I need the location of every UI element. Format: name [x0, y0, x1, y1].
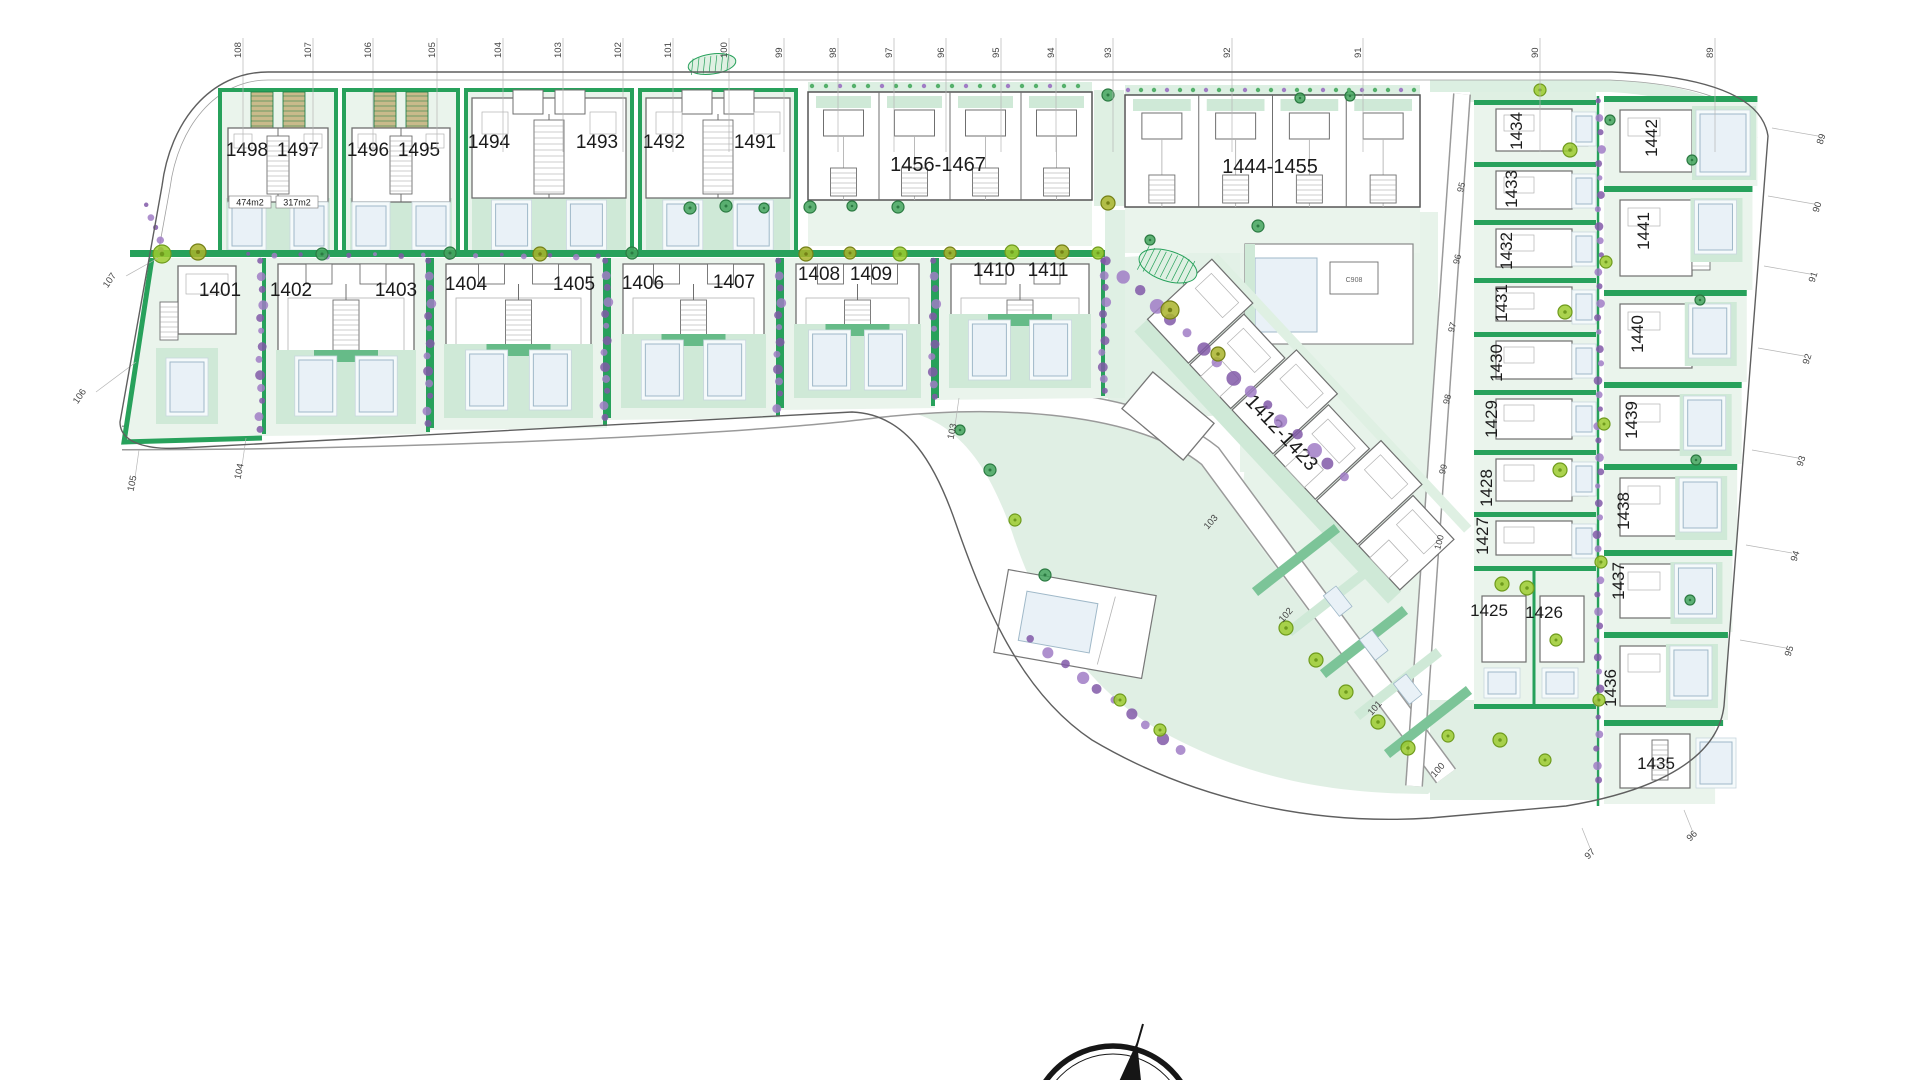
tree-center [1598, 699, 1601, 702]
stair-hatch [1296, 175, 1322, 203]
carport [406, 92, 428, 130]
pool-water [1576, 178, 1592, 204]
hedge-strip [1474, 450, 1596, 455]
tick-left: 106 [71, 387, 89, 406]
pool [1696, 738, 1736, 788]
pool [1696, 110, 1750, 176]
unit-terrace [1363, 113, 1403, 139]
lot-label-1431: 1431 [1492, 284, 1511, 322]
shrub-icon [1597, 145, 1606, 154]
shrub-icon [258, 342, 267, 351]
shrub-icon [930, 272, 939, 281]
tick-top: 98 [828, 47, 839, 58]
hedge-strip [1474, 332, 1596, 337]
tree-center [1097, 252, 1100, 255]
shrub-icon [930, 380, 938, 388]
shrub-icon [1263, 400, 1272, 409]
shrub-icon [272, 253, 278, 259]
tree-center [959, 429, 962, 432]
hedge-strip [1604, 382, 1742, 388]
lot-label-1405: 1405 [553, 274, 595, 295]
shrub-icon [1593, 746, 1599, 752]
pool [864, 330, 906, 390]
shrub-icon [600, 362, 610, 372]
pool-water [1688, 400, 1722, 446]
tick-top: 108 [233, 42, 244, 58]
shrub-icon [775, 377, 783, 385]
shrub-icon [928, 367, 938, 377]
tick-top: 93 [1103, 47, 1114, 58]
shrub-icon [257, 384, 265, 392]
shrub-icon [1595, 545, 1602, 552]
area-tag: 317m2 [283, 198, 311, 208]
stair-hatch [1149, 175, 1175, 203]
pool-water [294, 206, 324, 246]
pool-water [299, 360, 333, 412]
pool-water [170, 362, 204, 412]
shrub-icon [426, 325, 432, 331]
planting-dot [936, 84, 940, 88]
tick-mid-road: 96 [1451, 253, 1463, 265]
pool-water [868, 334, 902, 386]
shrub-icon [426, 299, 436, 309]
survey-line [1746, 545, 1792, 553]
shrub-icon [500, 253, 504, 257]
shrub-icon [1061, 659, 1070, 668]
shrub-icon [1597, 237, 1604, 244]
pool [1679, 478, 1721, 532]
shrub-icon [1595, 483, 1600, 488]
tick-right: 94 [1789, 549, 1803, 562]
carport [283, 92, 305, 130]
lot-label-1407: 1407 [713, 272, 755, 293]
hedge-strip [1604, 96, 1757, 102]
hedge-strip [342, 88, 460, 92]
shrub-icon [1596, 391, 1603, 398]
tick-top: 105 [427, 42, 438, 58]
tree-center [1060, 250, 1064, 254]
shrub-icon [1176, 745, 1186, 755]
pool [1572, 402, 1596, 436]
tick-right: 95 [1783, 644, 1797, 657]
pool-water [1674, 650, 1708, 696]
tree-center [809, 206, 812, 209]
lot-label-1496: 1496 [347, 140, 389, 161]
block-label: 1456-1467 [890, 154, 986, 176]
tick-top: 107 [303, 42, 314, 58]
tick-right: 93 [1795, 454, 1809, 467]
pool-water [359, 360, 393, 412]
tree-center [196, 250, 200, 254]
pool-water [1698, 204, 1732, 250]
lot-label-1433: 1433 [1502, 170, 1521, 208]
shrub-icon [931, 340, 940, 349]
stair-box [1149, 175, 1175, 203]
house-detail [482, 112, 508, 134]
block-1456-1467: 1456-1467 [808, 82, 1092, 246]
lot-label-1434: 1434 [1507, 112, 1526, 150]
shrub-icon [1596, 622, 1603, 629]
lot-pair-1404-1405: 14041405 [430, 258, 607, 430]
tree-center [804, 252, 808, 256]
shrub-icon [1292, 429, 1302, 439]
shrub-icon [604, 388, 610, 394]
lot-1435: 1435 [1604, 720, 1736, 804]
tree-center [1689, 599, 1692, 602]
tree-center [1691, 159, 1694, 162]
planting-dot [1204, 88, 1208, 92]
lot-label-1410: 1410 [973, 260, 1015, 281]
planting-dot [964, 84, 968, 88]
lot-1427: 1427 [1473, 512, 1596, 566]
survey-line [1772, 128, 1818, 136]
planting-dot [1217, 88, 1221, 92]
planting-dot [824, 84, 828, 88]
house-detail [656, 112, 682, 134]
shrub-icon [398, 253, 404, 259]
shrub-icon [1598, 360, 1604, 366]
shrub-icon [256, 356, 263, 363]
lot-pair-1498-1497: 14981497474m2317m2 [218, 88, 338, 252]
hedge-strip [1604, 550, 1732, 556]
hedge-strip [456, 88, 460, 252]
shrub-icon [931, 299, 941, 309]
planting-dot [1006, 84, 1010, 88]
shrub-icon [1594, 607, 1603, 616]
pool-water [1576, 406, 1592, 432]
lot-1430: 1430 [1474, 332, 1596, 390]
pool [704, 340, 746, 400]
pool [290, 202, 328, 250]
house-detail [1628, 572, 1660, 590]
lot-label-1440: 1440 [1628, 315, 1647, 353]
house-detail [590, 112, 616, 134]
shrub-icon [298, 252, 303, 257]
lot-label-1498: 1498 [226, 140, 268, 161]
shrub-icon [1594, 591, 1600, 597]
tree-center [1695, 459, 1698, 462]
shrub-icon [1274, 414, 1287, 427]
shrub-icon [1226, 371, 1241, 386]
pool [641, 340, 683, 400]
compass-icon [1031, 1024, 1195, 1080]
shrub-icon [1026, 635, 1034, 643]
pool-water [570, 204, 602, 246]
tree-center [763, 207, 766, 210]
lot-label-1409: 1409 [850, 264, 892, 285]
pool-water [533, 354, 567, 406]
shrub-icon [256, 314, 264, 322]
tree-center [1168, 308, 1173, 313]
stair-box [1370, 175, 1396, 203]
pool [1694, 200, 1736, 254]
shrub-icon [1593, 761, 1602, 770]
terrace-box [724, 90, 754, 114]
shrub-icon [1596, 684, 1605, 693]
lot-label-1437: 1437 [1609, 562, 1628, 600]
shrub-icon [255, 412, 264, 421]
shrub-icon [1100, 271, 1109, 280]
tick-right: 89 [1815, 132, 1829, 145]
shrub-icon [1197, 342, 1210, 355]
shrub-icon [1597, 175, 1602, 180]
tree-center [1149, 239, 1152, 242]
survey-line [1764, 266, 1810, 274]
stair-hatch [160, 302, 178, 340]
shrub-icon [1596, 98, 1601, 103]
tree-center [1558, 468, 1562, 472]
tree-center [1044, 574, 1047, 577]
tick-top: 94 [1046, 47, 1057, 58]
hedge-strip [334, 88, 338, 252]
pool [1572, 524, 1596, 558]
shrub-icon [246, 252, 250, 256]
unit-terrace-green [958, 96, 1013, 108]
hedge-strip [218, 88, 338, 92]
tree-center [1447, 735, 1450, 738]
hedge-strip [1604, 186, 1752, 192]
shrub-icon [346, 253, 351, 258]
shrub-icon [603, 297, 613, 307]
tree-center [1544, 759, 1547, 762]
tree-center [1349, 95, 1352, 98]
tree-center [1406, 746, 1410, 750]
tree-center [1525, 586, 1529, 590]
lot-label-1428: 1428 [1477, 469, 1496, 507]
shrub-icon [1126, 708, 1137, 719]
shrub-icon [473, 253, 478, 258]
shrub-icon [548, 253, 553, 258]
hedge-strip [1474, 704, 1596, 709]
house-detail [1504, 405, 1534, 421]
hedge-strip [1604, 464, 1737, 470]
shrub-icon [521, 253, 527, 259]
stair-hatch [1370, 175, 1396, 203]
shrub-icon [1098, 362, 1108, 372]
survey-line [1740, 640, 1786, 648]
stair-box [1296, 175, 1322, 203]
tree-center [1498, 738, 1502, 742]
tree-center [1284, 626, 1288, 630]
planting-dot [1191, 88, 1195, 92]
planting-dot [880, 84, 884, 88]
lot-label-1404: 1404 [445, 274, 488, 295]
stair-hatch [1044, 168, 1070, 196]
shrub-icon [1102, 284, 1109, 291]
lot-label-1406: 1406 [622, 273, 664, 294]
pool [355, 356, 397, 416]
planting-dot [1347, 88, 1351, 92]
tree-center [1376, 720, 1380, 724]
tree-center [631, 252, 634, 255]
pool [1670, 646, 1712, 700]
shrub-icon [425, 420, 432, 427]
lot-label-1408: 1408 [798, 264, 840, 285]
tree-center [849, 252, 852, 255]
tip-garden [1430, 700, 1596, 800]
lot-label-1493: 1493 [576, 132, 618, 153]
tree-center [1119, 699, 1122, 702]
tick-mid-road: 99 [1437, 463, 1449, 475]
shrub-icon [1595, 206, 1601, 212]
shrub-icon [602, 375, 610, 383]
hedge-strip [1604, 720, 1723, 726]
planting-dot [1243, 88, 1247, 92]
pool-water [1693, 308, 1727, 354]
planting-dot [1126, 88, 1130, 92]
tick-right: 91 [1807, 270, 1821, 283]
terrace-box [513, 90, 543, 114]
pool [663, 200, 703, 250]
hedge-strip [1604, 290, 1747, 296]
shrub-icon [777, 284, 784, 291]
tree-center [1257, 225, 1260, 228]
planting-dot [950, 84, 954, 88]
planting-dot [852, 84, 856, 88]
shrub-icon [928, 353, 935, 360]
shrub-icon [1102, 256, 1111, 265]
lot-1428: 1428 [1474, 450, 1596, 512]
tick-tip: 96 [1685, 829, 1700, 844]
shrub-icon [930, 258, 936, 264]
unit-terrace-green [1029, 96, 1084, 108]
pool [1572, 232, 1596, 266]
tick-mid-road: 98 [1441, 393, 1453, 405]
stair-hatch [1223, 175, 1249, 203]
planting-dot [1178, 88, 1182, 92]
house-detail [1628, 654, 1660, 672]
tree-center [897, 206, 900, 209]
planting-dot [922, 84, 926, 88]
tick-top: 92 [1222, 47, 1233, 58]
shrub-icon [1141, 721, 1150, 730]
tick-tip: 97 [1583, 847, 1598, 862]
lot-label-1411: 1411 [1028, 260, 1069, 281]
shrub-icon [423, 407, 432, 416]
shrub-icon [1321, 458, 1333, 470]
pool [1542, 668, 1578, 698]
site-plan-canvas: 14981497474m2317m21496149514941493149214… [0, 0, 1920, 1080]
lot-label-1432: 1432 [1497, 232, 1516, 270]
tree-center [1314, 658, 1318, 662]
lot-1434: 1434 [1474, 100, 1596, 162]
tree-center [725, 205, 728, 208]
block-1444-1455: 1444-1455 [1125, 85, 1420, 253]
tree-center [1216, 352, 1220, 356]
tree-center [1010, 250, 1014, 254]
tree-center [321, 253, 324, 256]
tick-right: 90 [1811, 200, 1825, 213]
unit-terrace-green [1281, 99, 1339, 111]
lot-1429: 1429 [1474, 390, 1596, 450]
pool [466, 350, 508, 410]
shrub-icon [932, 285, 939, 292]
hedge-strip [464, 88, 634, 92]
tree-center [1699, 299, 1702, 302]
lot-label-1492: 1492 [643, 132, 685, 153]
shrub-icon [373, 252, 377, 256]
shrub-icon [1597, 191, 1605, 199]
shrub-icon [1100, 375, 1108, 383]
shrub-icon [1594, 653, 1602, 661]
lot-1431: 1431 [1474, 278, 1596, 332]
shrub-icon [1245, 386, 1257, 398]
lot-pair-1494-1493: 14941493 [464, 88, 634, 252]
shrub-icon [1593, 530, 1602, 539]
shrub-icon [1042, 647, 1053, 658]
planting-dot [838, 84, 842, 88]
hedge-strip [1474, 100, 1596, 105]
shrub-icon [1183, 328, 1192, 337]
shrub-icon [255, 370, 265, 380]
tree-center [1344, 690, 1348, 694]
lot-1433: 1433 [1474, 162, 1596, 220]
shrub-icon [1101, 323, 1107, 329]
pool-water [232, 206, 262, 246]
lot-pair-1402-1403: 14021403 [262, 258, 430, 436]
tick-top: 91 [1353, 47, 1364, 58]
lot-1442-pool [1692, 106, 1756, 180]
planting-dot [1412, 88, 1416, 92]
pool [1572, 462, 1596, 496]
pool [566, 200, 606, 250]
shrub-icon [1595, 114, 1603, 122]
tree-center [1555, 639, 1558, 642]
tree-center [1563, 310, 1567, 314]
tick-top: 103 [553, 42, 564, 58]
shrub-icon [425, 380, 433, 388]
shrub-icon [427, 285, 434, 292]
shrub-icon [1595, 730, 1603, 738]
area-tag: 474m2 [236, 198, 264, 208]
carport [251, 92, 273, 130]
lot-1438: 1438 [1604, 464, 1737, 550]
shrub-icon [259, 398, 265, 404]
tree-center [1609, 119, 1612, 122]
shrub-icon [1595, 437, 1601, 443]
pool-water [645, 344, 679, 396]
tick-top: 99 [774, 47, 785, 58]
survey-line [1758, 348, 1804, 356]
tree-center [898, 252, 902, 256]
tree-center [449, 252, 452, 255]
tick-top: 101 [663, 42, 674, 58]
tree-center [538, 252, 542, 256]
pool [1674, 564, 1716, 618]
shrub-icon [775, 271, 784, 280]
compass-ring [1031, 1046, 1195, 1080]
lot-label-1439: 1439 [1622, 401, 1641, 439]
tree-center [851, 205, 854, 208]
shrub-icon [1597, 129, 1603, 135]
tick-top: 97 [884, 47, 895, 58]
pool-water [356, 206, 386, 246]
lot-label-1425: 1425 [1470, 601, 1508, 620]
lot-1441: 1441 [1604, 186, 1752, 290]
stair-box [160, 302, 178, 340]
pool-water [1678, 568, 1712, 614]
shrub-icon [1595, 222, 1604, 231]
hedge-strip [794, 88, 798, 252]
stair-box [534, 120, 564, 194]
pool [412, 202, 450, 250]
hedge-strip [1474, 566, 1596, 571]
planting-dot [894, 84, 898, 88]
shrub-icon [1595, 777, 1602, 784]
survey-line [1752, 450, 1798, 458]
shrub-icon [931, 326, 937, 332]
lot-label-1402: 1402 [270, 280, 312, 301]
